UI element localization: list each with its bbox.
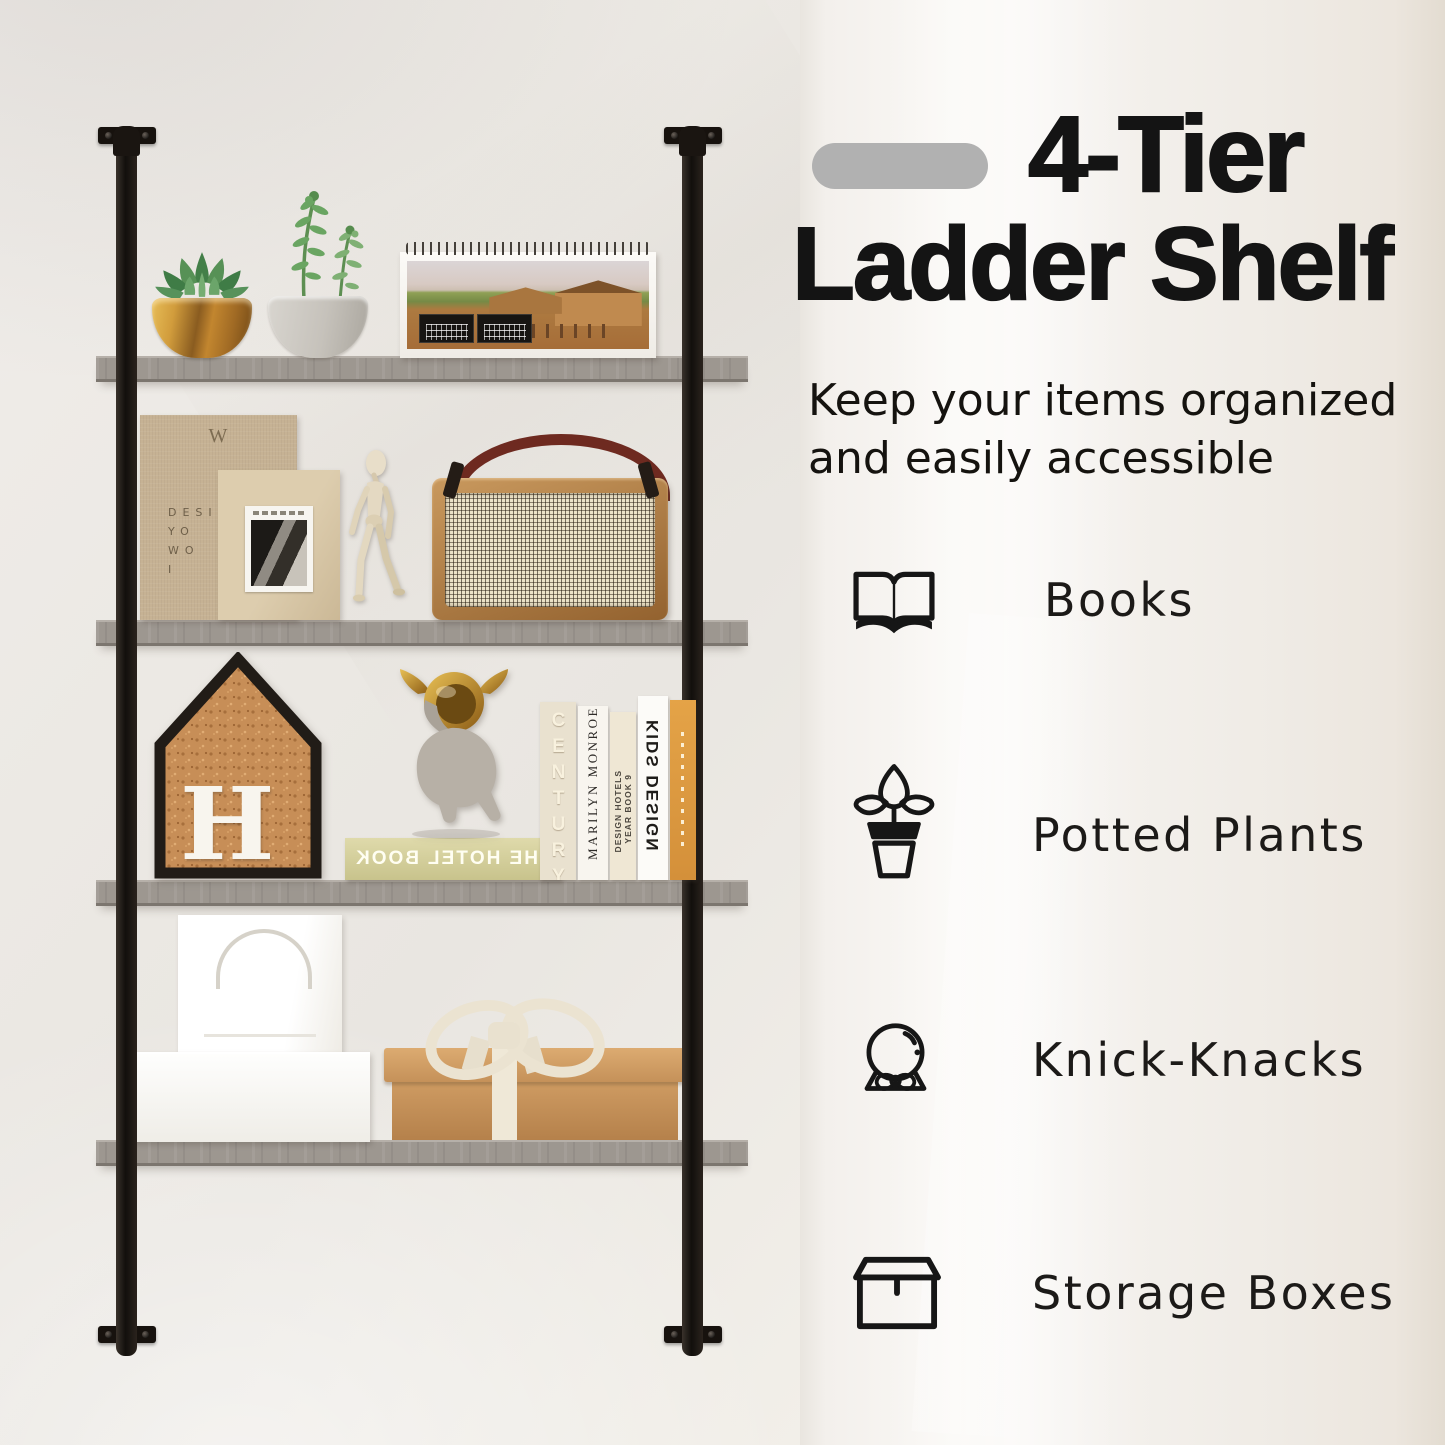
shelf-board-1 bbox=[96, 356, 748, 382]
feature-label-books: Books bbox=[1044, 572, 1195, 628]
mini-calendar-grid bbox=[419, 314, 474, 342]
radio-grille bbox=[445, 493, 655, 607]
book-cover-photo bbox=[245, 506, 313, 592]
feature-label-potted-plants: Potted Plants bbox=[1032, 807, 1367, 863]
bag-rope-handle bbox=[216, 929, 312, 989]
subtitle-line-2: and easily accessible bbox=[808, 430, 1397, 488]
shelf-photo: W DESIG YO WO I bbox=[0, 0, 802, 1445]
calendar-barn bbox=[555, 280, 642, 326]
calendar-photo bbox=[407, 261, 649, 349]
horned-figurine bbox=[378, 666, 530, 840]
linen-book-mark: W bbox=[140, 425, 297, 448]
storage-box-icon bbox=[848, 1252, 946, 1334]
succulent-rosette bbox=[146, 248, 258, 304]
info-panel: 4-Tier Ladder Shelf Keep your items orga… bbox=[800, 0, 1445, 1445]
trailing-succulent bbox=[266, 182, 370, 302]
mini-calendar-grid bbox=[477, 314, 532, 342]
gift-bag bbox=[178, 915, 342, 1065]
wooden-mannequin bbox=[333, 448, 415, 622]
feature-label-storage-boxes: Storage Boxes bbox=[1032, 1265, 1395, 1321]
title-line-2: Ladder Shelf bbox=[792, 212, 1392, 315]
gift-box bbox=[392, 1080, 678, 1140]
white-storage-box bbox=[132, 1052, 370, 1142]
hotel-book: THE HOTEL BOOK bbox=[345, 838, 561, 880]
rail-hook-right bbox=[679, 126, 706, 156]
product-image: W DESIG YO WO I bbox=[0, 0, 1445, 1445]
hotel-book-title: THE HOTEL BOOK bbox=[354, 848, 552, 870]
book-spine-kids-design: KIDS DESIGN bbox=[638, 696, 668, 880]
left-rail bbox=[116, 134, 137, 1356]
subtitle-line-1: Keep your items organized bbox=[808, 372, 1397, 430]
shelf-board-3 bbox=[96, 880, 748, 906]
shelf-board-4 bbox=[96, 1140, 748, 1166]
feature-label-knick-knacks: Knick-Knacks bbox=[1032, 1032, 1366, 1088]
calendar-spiral-binding bbox=[406, 242, 650, 255]
photo-book bbox=[218, 470, 340, 620]
book-spine-century: CENTURY bbox=[540, 702, 576, 880]
title-line-1: 4-Tier bbox=[1028, 100, 1302, 208]
open-book-icon bbox=[848, 563, 940, 637]
subtitle: Keep your items organized and easily acc… bbox=[808, 372, 1397, 488]
book-spine-marilyn: MARILYN MONROE bbox=[578, 706, 608, 880]
vintage-radio bbox=[432, 478, 668, 620]
bow-knot bbox=[488, 1022, 520, 1049]
book-spine-orange bbox=[670, 700, 696, 880]
badge-pill bbox=[812, 143, 988, 189]
rail-hook-left bbox=[113, 126, 140, 156]
cork-letter: H bbox=[180, 770, 274, 878]
potted-plant-icon bbox=[848, 762, 940, 884]
desk-calendar bbox=[400, 252, 656, 358]
calendar-barn bbox=[489, 287, 562, 313]
snow-globe-icon bbox=[848, 1012, 943, 1108]
book-row: CENTURY MARILYN MONROE DESIGN HOTELS YEA… bbox=[540, 696, 696, 880]
book-spine-design-hotels: DESIGN HOTELS YEAR BOOK 9 bbox=[610, 712, 636, 880]
shelf-board-2 bbox=[96, 620, 748, 646]
